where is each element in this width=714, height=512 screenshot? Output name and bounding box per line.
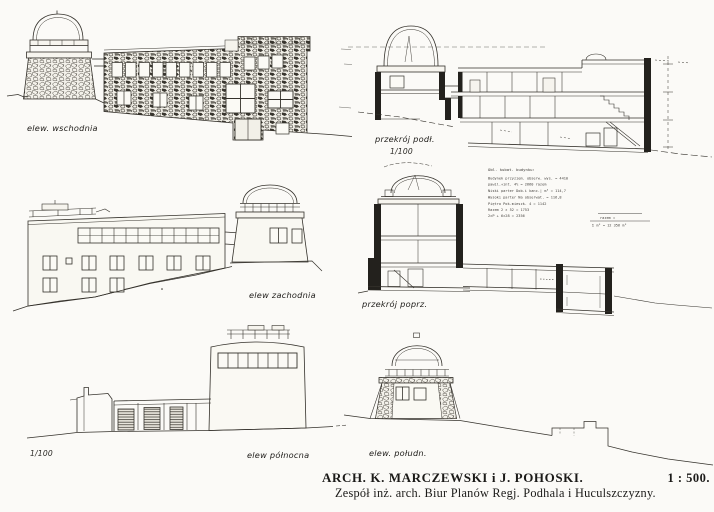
calc-table-row: Piętro Pok.mieszk. 4 = 1142 [488,202,546,206]
east-elevation-drawing [7,11,352,141]
caption-row-1: ARCH. K. MARCZEWSKI i J. POHOSKI. 1 : 50… [322,470,712,486]
north-elevation-scale: 1/100 [30,449,53,458]
longitudinal-section-label: przekrój podł. [374,134,435,144]
longitudinal-section-scale: 1/100 [390,147,413,156]
north-elevation-label: elew północna [247,450,309,460]
west-elevation-label: elew zachodnia [249,290,316,300]
drawing-sheet: elew. wschodnia [0,0,714,512]
south-elevation-drawing [344,333,713,465]
caption-scale: 1 : 500. [667,471,712,486]
calc-table-total: Σ m³ = 12 356 m³ [592,224,627,228]
longitudinal-section-drawing [348,26,712,167]
calc-table-row: Niski parter Dob.i kanc.| m³ = 114,7 [488,189,566,193]
caption-architects: ARCH. K. MARCZEWSKI i J. POHOSKI. [322,470,583,486]
drawings-canvas: elew. wschodnia [0,0,714,512]
calc-table-row: 2×P + 6×28 = 2356 [488,214,525,218]
calc-table: Obl. kubat. budynku: Budynek przyziem. o… [488,167,650,228]
caption-block: ARCH. K. MARCZEWSKI i J. POHOSKI. 1 : 50… [322,470,712,501]
calc-table-row: Razem 2 × 52 = 1753 [488,208,529,212]
calc-table-title: Obl. kubat. budynku: [488,167,535,172]
calc-table-total: razem = [600,216,616,220]
calc-table-row: Wysoki parter Na obserwat. = 116,8 [488,196,562,200]
east-elevation-label: elew. wschodnia [27,123,98,133]
caption-credit: Zespół inż. arch. Biur Planów Regj. Podh… [322,486,712,501]
calc-table-row: pawil.+int. 4% = 2660 razem [488,183,546,187]
south-elevation-label: elew. połudn. [369,448,427,458]
cross-section-label: przekrój poprz. [361,299,427,309]
north-elevation-drawing [27,326,348,439]
calc-table-row: Budynek przyziem. obserw. wys. = 4410 [488,177,568,181]
